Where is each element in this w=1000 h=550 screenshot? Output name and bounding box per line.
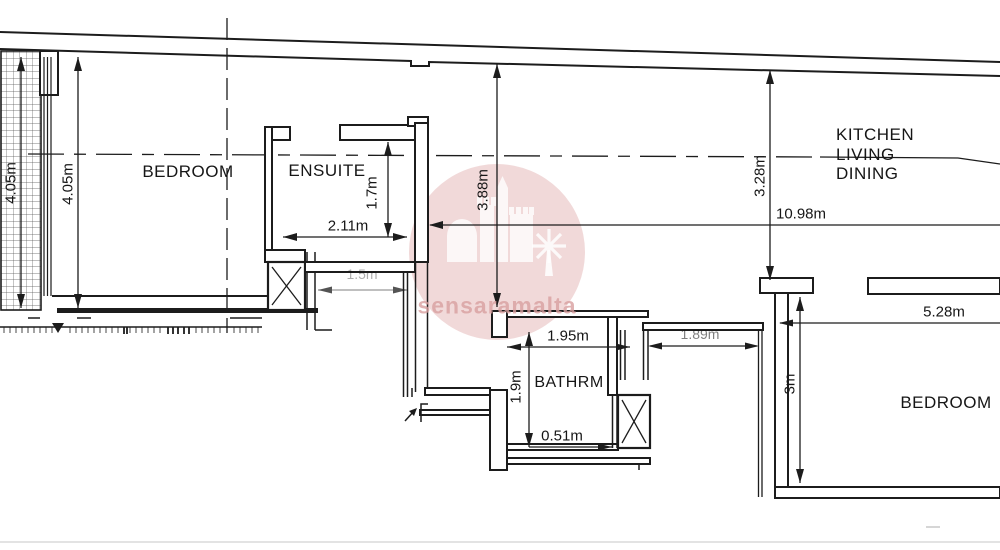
dim-label-balcony-height-outer: 4.05m — [3, 162, 20, 204]
room-label-kitchen-line2: LIVING — [836, 145, 895, 165]
dim-label-hall-width: 1.5m — [346, 266, 377, 282]
ensuite-walls — [265, 117, 428, 262]
dim-label-living-width: 10.98m — [776, 206, 826, 223]
wall-pier — [40, 51, 58, 95]
dim-label-bedroom-right-width: 5.28m — [923, 304, 965, 321]
room-label-bathroom: BATHRM — [534, 374, 603, 392]
dim-label-living-depth-left: 3.88m — [475, 169, 492, 211]
floor-plan-drawing — [0, 0, 1000, 550]
room-label-kitchen-line3: DINING — [836, 164, 899, 184]
dim-label-bathroom-width: 1.95m — [547, 328, 589, 345]
dim-label-ensuite-width: 2.11m — [328, 218, 369, 235]
dim-label-bathroom-offset: 0.51m — [541, 428, 583, 445]
room-label-ensuite: ENSUITE — [288, 161, 365, 181]
dim-label-ensuite-depth: 1.7m — [364, 176, 381, 209]
room-label-kitchen-line1: KITCHEN — [836, 125, 914, 145]
dim-label-living-depth-right: 3.28m — [752, 155, 769, 197]
floor-plan: BEDROOM ENSUITE KITCHEN LIVING DINING BA… — [0, 0, 1000, 550]
dim-label-bedroom-right-depth: 3m — [782, 374, 799, 395]
dim-label-balcony-height-inner: 4.05m — [60, 163, 77, 205]
dim-label-bathroom-depth: 1.9m — [508, 370, 525, 403]
room-label-bedroom-right: BEDROOM — [900, 393, 991, 413]
watermark-text: sensaramalta — [417, 293, 576, 320]
terrace-tick-line — [0, 318, 262, 334]
room-label-bedroom-left: BEDROOM — [142, 162, 233, 182]
dim-label-corridor-width: 1.89m — [681, 326, 720, 342]
exterior-north-wall — [0, 32, 1000, 76]
